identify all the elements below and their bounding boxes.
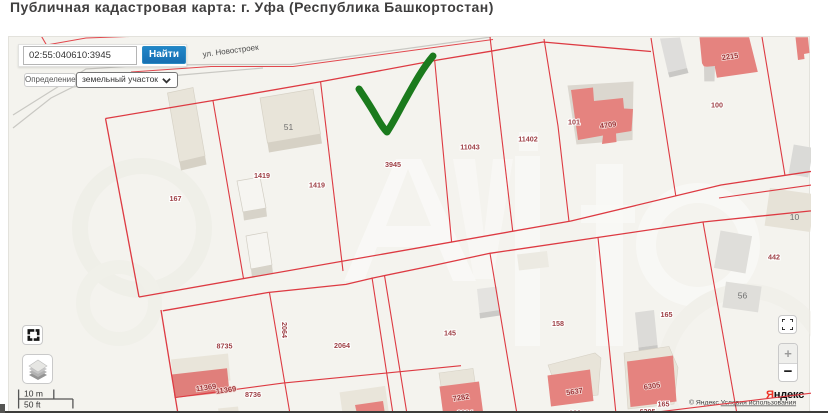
svg-text:3945: 3945 bbox=[385, 160, 401, 169]
svg-text:165: 165 bbox=[661, 310, 673, 319]
svg-text:2064: 2064 bbox=[280, 322, 289, 338]
svg-text:1419: 1419 bbox=[254, 171, 270, 180]
svg-text:100: 100 bbox=[711, 101, 723, 110]
svg-text:© Яндекс Условия использовани: © Яндекс Условия использования bbox=[689, 399, 796, 407]
svg-text:1419: 1419 bbox=[309, 181, 325, 190]
svg-text:10: 10 bbox=[790, 212, 800, 222]
svg-text:167: 167 bbox=[170, 194, 182, 203]
svg-text:442: 442 bbox=[768, 253, 780, 262]
svg-text:11369: 11369 bbox=[215, 384, 237, 396]
svg-text:56: 56 bbox=[738, 291, 748, 301]
svg-text:8735: 8735 bbox=[217, 342, 233, 351]
svg-text:2064: 2064 bbox=[334, 341, 350, 350]
svg-text:11043: 11043 bbox=[460, 143, 480, 152]
svg-text:8736: 8736 bbox=[245, 390, 261, 399]
svg-text:51: 51 bbox=[284, 122, 294, 132]
svg-text:11402: 11402 bbox=[518, 135, 538, 144]
svg-text:101: 101 bbox=[568, 118, 580, 127]
svg-text:10 m: 10 m bbox=[24, 389, 43, 399]
svg-text:165: 165 bbox=[658, 400, 670, 409]
svg-text:ул. Новостроек: ул. Новостроек bbox=[202, 43, 259, 59]
svg-text:158: 158 bbox=[552, 319, 564, 328]
svg-text:145: 145 bbox=[444, 329, 456, 338]
svg-text:50 ft: 50 ft bbox=[24, 400, 41, 410]
